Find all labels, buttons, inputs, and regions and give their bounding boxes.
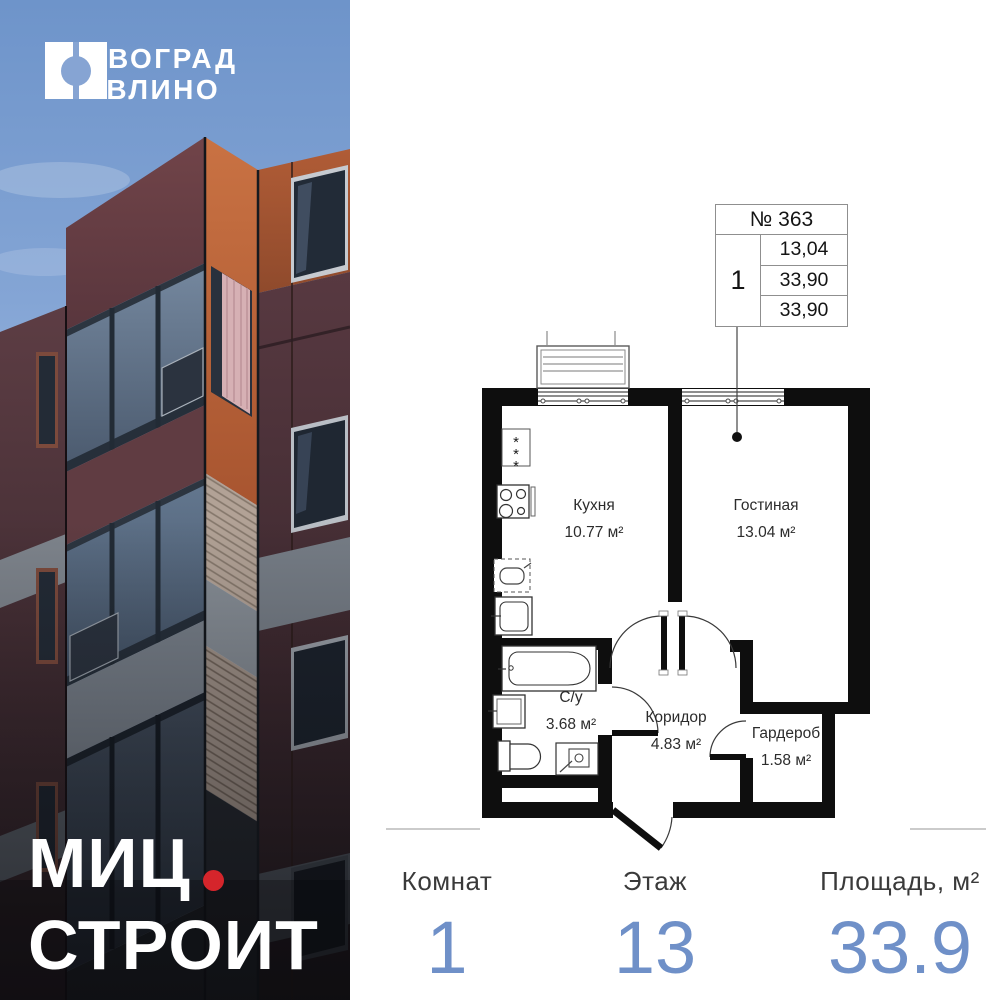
summary-area: Площадь, м² 33.9 bbox=[780, 866, 1000, 985]
summary-rooms-value: 1 bbox=[327, 911, 567, 985]
leader-dot bbox=[732, 432, 742, 442]
apartment-card[interactable]: НОВОГРАД ПАВЛИНО МИЦ СТРОИТ bbox=[0, 0, 1000, 1000]
summary-rooms-label: Комнат bbox=[327, 866, 567, 897]
logo-mark-icon bbox=[45, 42, 107, 99]
brand-red-dot-icon bbox=[203, 870, 224, 891]
room-name: Кухня bbox=[573, 497, 614, 515]
unit-rooms-count: 1 bbox=[716, 235, 761, 326]
developer-name-line1: МИЦ bbox=[28, 828, 191, 898]
room-area: 1.58 м² bbox=[761, 752, 811, 770]
entry-door bbox=[613, 810, 672, 848]
summary-area-value: 33.9 bbox=[780, 911, 1000, 985]
room-area: 13.04 м² bbox=[737, 524, 796, 542]
room-label-wardrobe: Гардероб 1.58 м² bbox=[752, 725, 820, 770]
developer-logo: МИЦ СТРОИТ bbox=[28, 828, 319, 980]
room-name: Гардероб bbox=[752, 725, 820, 743]
leader-line bbox=[732, 327, 742, 442]
balcony bbox=[537, 331, 629, 388]
unit-table: № 363 1 13,04 33,90 33,90 bbox=[715, 204, 848, 327]
summary-floor: Этаж 13 bbox=[535, 866, 775, 985]
summary-floor-label: Этаж bbox=[535, 866, 775, 897]
washing-machine-icon bbox=[556, 743, 598, 775]
toilet-icon bbox=[498, 741, 541, 771]
summary-rooms: Комнат 1 bbox=[327, 866, 567, 985]
room-area: 4.83 м² bbox=[651, 736, 701, 754]
unit-living-area: 13,04 bbox=[761, 235, 847, 265]
room-label-corridor: Коридор 4.83 м² bbox=[645, 709, 706, 754]
unit-total-area: 33,90 bbox=[761, 265, 847, 296]
kitchen-sink-icon bbox=[494, 559, 531, 592]
room-label-living: Гостиная 13.04 м² bbox=[733, 497, 798, 542]
unit-sale-area: 33,90 bbox=[761, 295, 847, 326]
room-area: 3.68 м² bbox=[546, 716, 596, 734]
kitchen-door bbox=[610, 611, 668, 675]
wardrobe-door bbox=[710, 721, 746, 760]
room-name: Гостиная bbox=[733, 497, 798, 515]
summary-floor-value: 13 bbox=[535, 911, 775, 985]
living-room-door bbox=[678, 611, 736, 675]
room-name: Коридор bbox=[645, 709, 706, 727]
fridge-icon bbox=[491, 597, 532, 635]
ventilation-shaft-icon: * * * bbox=[502, 429, 530, 475]
kitchen-window bbox=[538, 389, 628, 405]
svg-text:*: * bbox=[513, 458, 519, 475]
stove-icon bbox=[497, 485, 535, 518]
developer-name-line2: СТРОИТ bbox=[28, 910, 319, 980]
unit-number: № 363 bbox=[716, 205, 847, 235]
living-room-window bbox=[682, 389, 784, 405]
room-label-kitchen: Кухня 10.77 м² bbox=[565, 497, 624, 542]
room-label-bathroom: С/у 3.68 м² bbox=[546, 689, 596, 734]
room-name: С/у bbox=[559, 689, 582, 707]
brand-logo: НОВОГРАД ПАВЛИНО bbox=[45, 42, 238, 105]
bathtub-icon bbox=[498, 646, 596, 691]
summary-area-label: Площадь, м² bbox=[780, 866, 1000, 897]
bathroom-sink-icon bbox=[488, 695, 525, 728]
room-area: 10.77 м² bbox=[565, 524, 624, 542]
